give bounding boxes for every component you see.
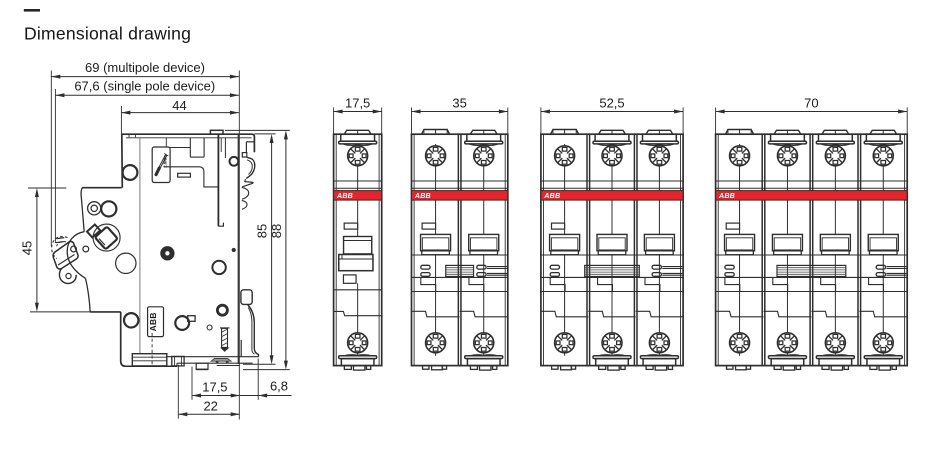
- svg-text:88: 88: [269, 224, 284, 238]
- svg-text:2.8Nm: 2.8Nm: [163, 155, 168, 168]
- svg-text:Dimensional drawing: Dimensional drawing: [24, 24, 191, 44]
- svg-text:6,8: 6,8: [270, 379, 288, 394]
- svg-text:ABB: ABB: [336, 192, 353, 200]
- svg-text:85: 85: [255, 224, 270, 238]
- svg-text:ABB: ABB: [148, 312, 158, 331]
- svg-text:ABB: ABB: [414, 192, 431, 200]
- svg-text:ABB: ABB: [543, 192, 560, 200]
- svg-text:69 (multipole device): 69 (multipole device): [85, 60, 205, 75]
- svg-text:45: 45: [20, 241, 35, 255]
- svg-text:44: 44: [172, 98, 186, 113]
- svg-text:70: 70: [804, 96, 818, 111]
- svg-text:ABB: ABB: [718, 192, 735, 200]
- svg-text:17,5: 17,5: [345, 96, 370, 111]
- svg-text:52,5: 52,5: [599, 96, 624, 111]
- svg-text:67,6 (single pole device): 67,6 (single pole device): [74, 79, 215, 94]
- svg-text:22: 22: [203, 399, 217, 414]
- svg-text:35: 35: [452, 96, 466, 111]
- svg-text:17,5: 17,5: [202, 380, 227, 395]
